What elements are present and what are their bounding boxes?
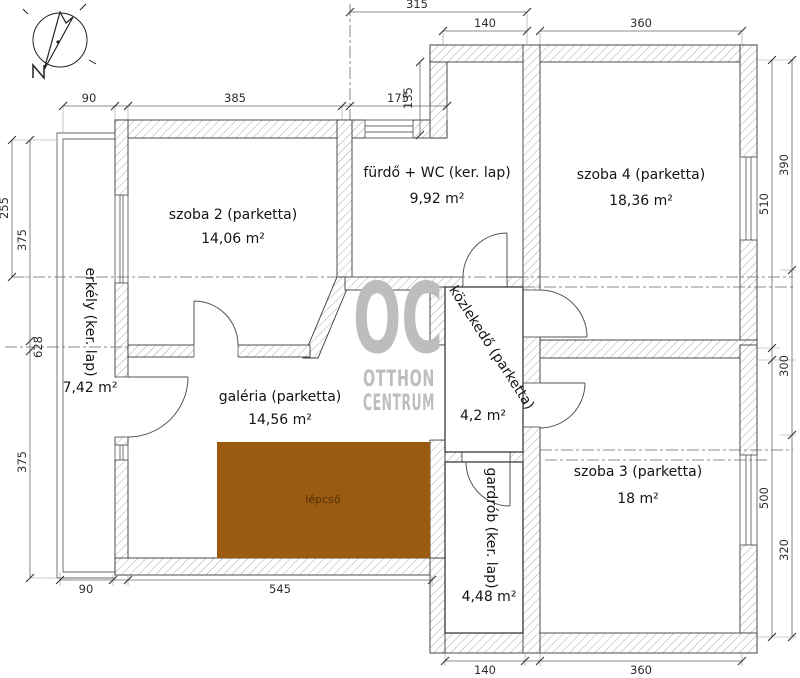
- room-area-szoba4: 18,36 m²: [609, 193, 673, 209]
- door-furdo: [463, 233, 507, 277]
- dim-left-375a: 375: [15, 229, 29, 251]
- dim-upper-90: 90: [82, 91, 97, 105]
- wall-segment: [115, 558, 445, 575]
- room-area-kozlekedo: 4,2 m²: [460, 408, 506, 424]
- window: [739, 157, 758, 240]
- room-area-szoba3: 18 m²: [617, 491, 659, 507]
- north-label-glyph: [33, 65, 44, 78]
- dim-right-390: 390: [777, 154, 791, 176]
- floor-plan-canvas: OC OTTHON CENTRUM szoba 2 (parketta) 14,…: [0, 0, 800, 678]
- dim-top-360: 360: [630, 16, 652, 30]
- room-label-gardrob: gardrób (ker. lap): [483, 467, 499, 588]
- door-opening: [194, 344, 238, 358]
- room-label-lepcso: lépcső: [305, 493, 341, 506]
- room-label-szoba2: szoba 2 (parketta): [169, 207, 297, 223]
- dim-right-300: 300: [777, 355, 791, 377]
- wall-segment: [523, 340, 757, 358]
- watermark-logo: OC OTTHON CENTRUM: [353, 262, 443, 416]
- wall-segment: [430, 558, 445, 653]
- room-area-furdo: 9,92 m²: [410, 191, 465, 207]
- window: [739, 455, 758, 545]
- dim-right-510: 510: [757, 193, 771, 215]
- room-label-szoba3: szoba 3 (parketta): [574, 464, 702, 480]
- window: [114, 445, 129, 460]
- door-szoba4: [540, 290, 587, 337]
- room-area-szoba2: 14,06 m²: [201, 231, 265, 247]
- dim-bottom-360: 360: [630, 663, 652, 677]
- door-galeria: [128, 377, 188, 437]
- door-opening: [462, 451, 510, 463]
- dim-top-140: 140: [474, 16, 496, 30]
- wall-segment: [430, 633, 757, 653]
- dim-right-320: 320: [777, 539, 791, 561]
- window: [365, 119, 413, 139]
- dim-top-315: 315: [406, 0, 428, 11]
- room-label-galeria: galéria (parketta): [219, 389, 342, 405]
- wall-segment: [430, 440, 445, 558]
- wall-segment: [430, 45, 757, 62]
- dim-bottom-90: 90: [79, 582, 94, 596]
- north-arrow-icon: [23, 4, 96, 78]
- room-area-erkely: 7,42 m²: [63, 380, 118, 396]
- door-szoba3: [540, 383, 585, 428]
- window: [114, 195, 129, 283]
- dim-bottom-545: 545: [269, 582, 291, 596]
- floor-plan-svg: OC OTTHON CENTRUM szoba 2 (parketta) 14,…: [0, 0, 800, 678]
- dim-upper-385: 385: [224, 91, 246, 105]
- room-label-erkely: erkély (ker. lap): [82, 267, 98, 376]
- wall-segment: [510, 452, 523, 462]
- door-szoba2: [194, 301, 238, 345]
- watermark-oc: OC: [353, 262, 443, 375]
- watermark-centrum: CENTRUM: [363, 391, 435, 416]
- watermark-otthon: OTTHON: [363, 367, 435, 392]
- dim-left-255: 255: [0, 197, 11, 219]
- dim-bottom-140: 140: [474, 663, 496, 677]
- wall-segment: [445, 452, 462, 462]
- room-area-galeria: 14,56 m²: [248, 412, 312, 428]
- door-opening: [522, 290, 541, 337]
- room-label-szoba4: szoba 4 (parketta): [577, 167, 705, 183]
- wall-segment: [115, 120, 128, 575]
- wall-segment: [337, 120, 352, 277]
- wall-segment: [523, 45, 540, 653]
- room-label-furdo: fürdő + WC (ker. lap): [363, 165, 510, 181]
- dim-upper-135: 135: [401, 87, 415, 109]
- room-area-gardrob: 4,48 m²: [462, 589, 517, 605]
- dim-left-375b: 375: [15, 451, 29, 473]
- dim-left-628: 628: [31, 336, 45, 358]
- dim-right-500: 500: [757, 487, 771, 509]
